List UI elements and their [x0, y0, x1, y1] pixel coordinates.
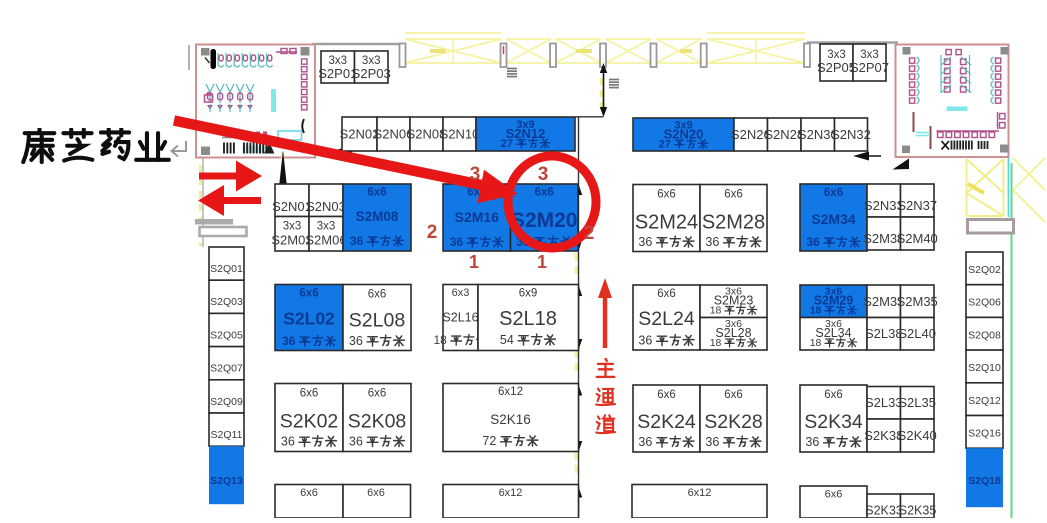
svg-text:S2Q07: S2Q07 — [210, 363, 243, 375]
svg-text:18: 18 — [810, 337, 822, 349]
svg-text:6x9: 6x9 — [519, 288, 538, 300]
svg-text:S2P03: S2P03 — [352, 66, 391, 81]
svg-text:S2M40: S2M40 — [897, 231, 938, 246]
svg-text:S2L08: S2L08 — [349, 310, 405, 332]
svg-text:S2Q01: S2Q01 — [210, 263, 243, 275]
svg-text:36: 36 — [705, 435, 719, 449]
svg-text:6x6: 6x6 — [825, 489, 843, 501]
svg-text:6x6: 6x6 — [824, 187, 843, 199]
svg-text:27: 27 — [659, 139, 671, 151]
svg-text:S2K34: S2K34 — [804, 411, 863, 433]
svg-text:36: 36 — [805, 435, 819, 449]
svg-text:36: 36 — [450, 235, 464, 249]
svg-text:6x6: 6x6 — [300, 487, 318, 499]
svg-text:S2L24: S2L24 — [638, 308, 695, 330]
svg-text:18: 18 — [810, 305, 822, 317]
svg-text:6x6: 6x6 — [657, 389, 676, 401]
svg-text:S2Q16: S2Q16 — [968, 428, 1001, 440]
svg-text:S2M34: S2M34 — [811, 211, 856, 227]
svg-text:3: 3 — [470, 164, 481, 185]
svg-text:S2P07: S2P07 — [850, 60, 889, 75]
svg-text:6x6: 6x6 — [368, 388, 387, 400]
svg-text:6x6: 6x6 — [367, 487, 385, 499]
svg-text:S2L33: S2L33 — [865, 395, 903, 410]
svg-text:S2K33: S2K33 — [865, 504, 903, 518]
svg-text:S2Q12: S2Q12 — [968, 395, 1001, 407]
svg-text:6x6: 6x6 — [368, 289, 387, 301]
svg-text:36: 36 — [638, 334, 652, 348]
svg-text:6x12: 6x12 — [498, 386, 523, 398]
svg-text:3: 3 — [538, 164, 549, 185]
svg-text:18: 18 — [710, 305, 722, 317]
svg-text:6x3: 6x3 — [452, 287, 470, 299]
svg-text:36: 36 — [350, 234, 364, 248]
svg-text:6x6: 6x6 — [300, 388, 319, 400]
svg-text:S2L18: S2L18 — [499, 308, 557, 330]
svg-text:27: 27 — [501, 138, 513, 150]
svg-text:3x3: 3x3 — [283, 221, 302, 233]
svg-text:S2Q18: S2Q18 — [968, 475, 1001, 487]
svg-text:S2N32: S2N32 — [831, 127, 871, 142]
svg-text:6x6: 6x6 — [299, 288, 318, 300]
svg-text:3x3: 3x3 — [317, 221, 336, 233]
svg-text:6x6: 6x6 — [724, 189, 743, 201]
svg-text:S2Q06: S2Q06 — [968, 297, 1001, 309]
svg-text:1: 1 — [537, 252, 547, 272]
svg-text:6x6: 6x6 — [824, 389, 843, 401]
svg-text:S2K16: S2K16 — [490, 412, 531, 427]
svg-text:6x12: 6x12 — [499, 487, 523, 499]
svg-text:72: 72 — [482, 434, 496, 448]
svg-text:S2M16: S2M16 — [455, 209, 500, 225]
svg-text:6x6: 6x6 — [724, 389, 743, 401]
svg-text:18: 18 — [434, 333, 448, 347]
svg-text:S2N03: S2N03 — [306, 199, 346, 214]
svg-text:S2M08: S2M08 — [356, 209, 399, 224]
svg-text:S2K35: S2K35 — [899, 504, 937, 518]
svg-text:S2Q11: S2Q11 — [211, 429, 243, 441]
svg-text:S2M06: S2M06 — [305, 233, 346, 248]
svg-text:S2Q02: S2Q02 — [968, 264, 1001, 276]
svg-text:S2K28: S2K28 — [704, 411, 763, 433]
svg-text:36: 36 — [281, 435, 295, 449]
svg-text:36: 36 — [349, 435, 363, 449]
svg-text:36: 36 — [638, 235, 652, 249]
svg-text:18: 18 — [710, 337, 722, 349]
svg-text:6x6: 6x6 — [657, 288, 676, 300]
svg-text:36: 36 — [349, 334, 363, 348]
svg-text:S2N37: S2N37 — [897, 198, 937, 213]
svg-text:S2K24: S2K24 — [637, 411, 696, 433]
svg-text:6x6: 6x6 — [535, 187, 554, 199]
svg-text:36: 36 — [638, 435, 652, 449]
svg-text:2: 2 — [584, 223, 595, 244]
svg-text:S2L38: S2L38 — [865, 326, 903, 341]
svg-text:S2L40: S2L40 — [898, 326, 936, 341]
svg-text:1: 1 — [469, 252, 479, 272]
svg-text:36: 36 — [807, 235, 821, 249]
svg-text:S2Q08: S2Q08 — [968, 329, 1001, 341]
svg-text:S2L16: S2L16 — [442, 311, 478, 325]
svg-text:S2M28: S2M28 — [702, 212, 765, 234]
svg-text:S2Q10: S2Q10 — [968, 362, 1001, 374]
svg-text:S2L02: S2L02 — [283, 309, 335, 329]
svg-text:S2K08: S2K08 — [348, 411, 407, 433]
svg-text:36: 36 — [705, 235, 719, 249]
svg-text:54: 54 — [500, 333, 514, 347]
svg-text:36: 36 — [282, 334, 296, 348]
svg-text:S2Q03: S2Q03 — [210, 296, 243, 308]
svg-text:S2K40: S2K40 — [898, 428, 937, 443]
svg-text:6x6: 6x6 — [657, 189, 676, 201]
svg-text:2: 2 — [427, 222, 438, 243]
svg-text:S2Q13: S2Q13 — [210, 475, 243, 487]
svg-text:6x12: 6x12 — [688, 487, 712, 499]
svg-text:S2M24: S2M24 — [635, 212, 698, 234]
svg-text:S2Q09: S2Q09 — [210, 396, 243, 408]
svg-text:S2M35: S2M35 — [897, 294, 938, 309]
svg-text:6x6: 6x6 — [367, 187, 386, 199]
svg-text:S2N10: S2N10 — [440, 127, 480, 142]
svg-text:S2L35: S2L35 — [898, 395, 936, 410]
svg-text:S2K02: S2K02 — [280, 411, 339, 433]
svg-text:S2Q05: S2Q05 — [210, 329, 243, 341]
